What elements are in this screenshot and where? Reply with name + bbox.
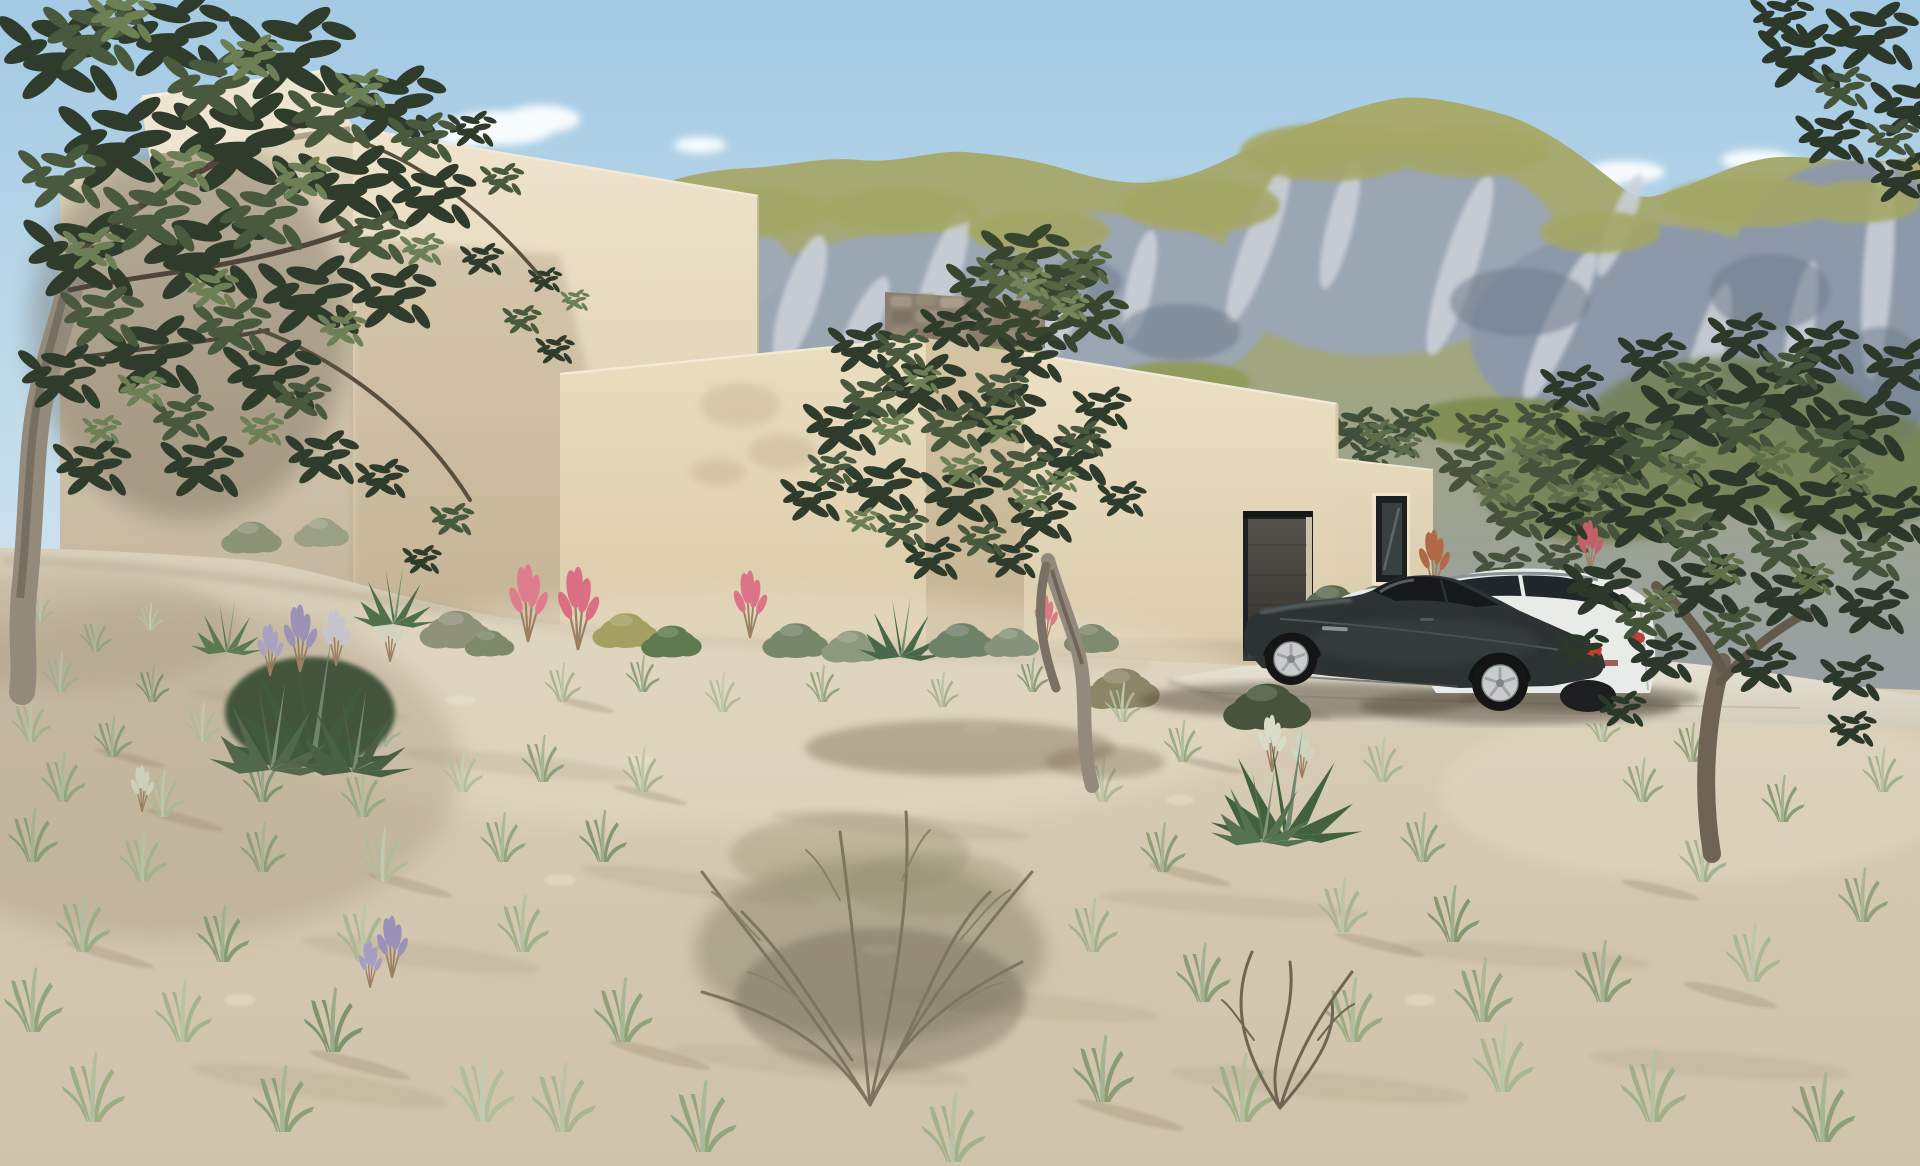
window-tall (1372, 493, 1410, 585)
tree-shadow (1045, 746, 1165, 778)
rear-wheel (1472, 655, 1528, 711)
front-wheel (1265, 633, 1317, 685)
render-canvas (0, 0, 1920, 1166)
cloud (674, 137, 726, 153)
villa-render (0, 0, 1920, 1166)
door-handle (1420, 618, 1434, 621)
